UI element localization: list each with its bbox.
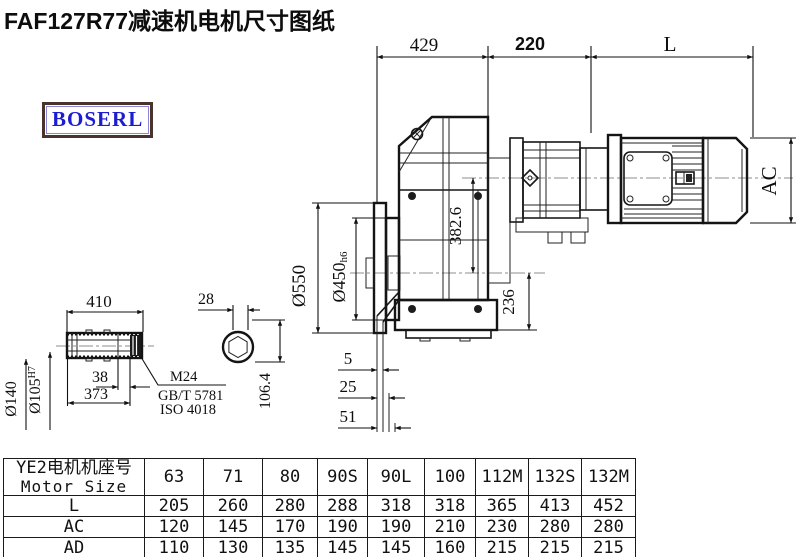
cell-L-8: 452: [582, 496, 636, 517]
dim-label-51: 51: [340, 407, 357, 426]
cell-AC-5: 210: [425, 517, 476, 538]
table-row-AD: AD 110 130 135 145 145 160 215 215 215: [4, 538, 636, 557]
row-label-AC: AC: [4, 517, 145, 538]
dim-label-429: 429: [410, 35, 439, 56]
dim-label-bore-fit: H7: [27, 366, 38, 378]
col-header-112m: 112M: [476, 459, 529, 496]
col-header-90l: 90L: [368, 459, 425, 496]
cell-L-4: 318: [368, 496, 425, 517]
cell-AD-8: 215: [582, 538, 636, 557]
drawing-sheet: FAF127R77减速机电机尺寸图纸 BOSERL 429 2: [0, 0, 800, 557]
col-header-132s: 132S: [529, 459, 582, 496]
dim-label-flange-od: Ø550: [289, 265, 310, 307]
callout-standard-iso: ISO 4018: [160, 402, 216, 418]
motor: [621, 138, 747, 223]
dim-label-38: 38: [92, 369, 108, 386]
dim-label-5: 5: [344, 349, 353, 368]
dim-label-spigot-dia: Ø450: [329, 263, 349, 303]
callout-thread: M24: [170, 369, 198, 385]
cell-L-0: 205: [145, 496, 204, 517]
cell-L-3: 288: [318, 496, 368, 517]
hollow-shaft-detail: 410 Ø140 Ø105H7 38 373 M24 GB/T 5781 ISO…: [3, 292, 226, 430]
cell-AC-1: 145: [204, 517, 263, 538]
cell-AC-7: 280: [529, 517, 582, 538]
dim-label-106-4: 106.4: [257, 373, 274, 409]
centerlines: [56, 178, 793, 346]
motor-size-table: YE2电机机座号 Motor Size 63 71 80 90S 90L 100…: [3, 458, 636, 557]
cell-AD-2: 135: [263, 538, 318, 557]
dim-label-373: 373: [84, 386, 108, 403]
cell-AC-3: 190: [318, 517, 368, 538]
cell-AD-7: 215: [529, 538, 582, 557]
dim-label-spigot: Ø450h6: [329, 251, 350, 303]
dim-label-410: 410: [86, 292, 112, 311]
row-label-L: L: [4, 496, 145, 517]
dim-label-bore: Ø105H7: [27, 366, 44, 414]
cell-AC-8: 280: [582, 517, 636, 538]
col-header-132m: 132M: [582, 459, 636, 496]
cell-L-1: 260: [204, 496, 263, 517]
dim-label-236: 236: [499, 289, 518, 315]
cell-AD-1: 130: [204, 538, 263, 557]
table-row-AC: AC 120 145 170 190 190 210 230 280 280: [4, 517, 636, 538]
cell-L-6: 365: [476, 496, 529, 517]
col-header-63: 63: [145, 459, 204, 496]
col-header-71: 71: [204, 459, 263, 496]
row-label-AD: AD: [4, 538, 145, 557]
header-motor-size-cn: YE2电机机座号: [4, 459, 144, 478]
header-motor-size: YE2电机机座号 Motor Size: [4, 459, 145, 496]
cell-AD-6: 215: [476, 538, 529, 557]
col-header-90s: 90S: [318, 459, 368, 496]
dim-label-382-6: 382.6: [446, 207, 465, 245]
dim-label-25: 25: [340, 377, 357, 396]
table-row-L: L 205 260 280 288 318 318 365 413 452: [4, 496, 636, 517]
cell-L-5: 318: [425, 496, 476, 517]
cell-AC-0: 120: [145, 517, 204, 538]
dim-label-bore-dia: Ø105: [27, 378, 44, 414]
cell-AD-0: 110: [145, 538, 204, 557]
col-header-80: 80: [263, 459, 318, 496]
header-motor-size-en: Motor Size: [4, 478, 144, 496]
dim-label-ac: AC: [757, 166, 781, 195]
cell-AD-3: 145: [318, 538, 368, 557]
dim-label-shaft-od: Ø140: [3, 381, 20, 417]
table-header-row: YE2电机机座号 Motor Size 63 71 80 90S 90L 100…: [4, 459, 636, 496]
cell-L-2: 280: [263, 496, 318, 517]
col-header-100: 100: [425, 459, 476, 496]
dim-label-spigot-fit: h6: [338, 251, 350, 263]
dim-label-28: 28: [198, 291, 214, 308]
dim-label-L: L: [664, 32, 677, 56]
main-view-dimensions: 382.6 236 AC Ø550 Ø450h6: [289, 138, 796, 333]
cell-AC-6: 230: [476, 517, 529, 538]
r-unit: [488, 135, 621, 283]
dim-label-220: 220: [515, 34, 545, 54]
cell-L-7: 413: [529, 496, 582, 517]
cell-AD-5: 160: [425, 538, 476, 557]
cell-AD-4: 145: [368, 538, 425, 557]
cell-AC-2: 170: [263, 517, 318, 538]
face-offset-dimensions: 5 25 51: [338, 349, 411, 428]
cell-AC-4: 190: [368, 517, 425, 538]
